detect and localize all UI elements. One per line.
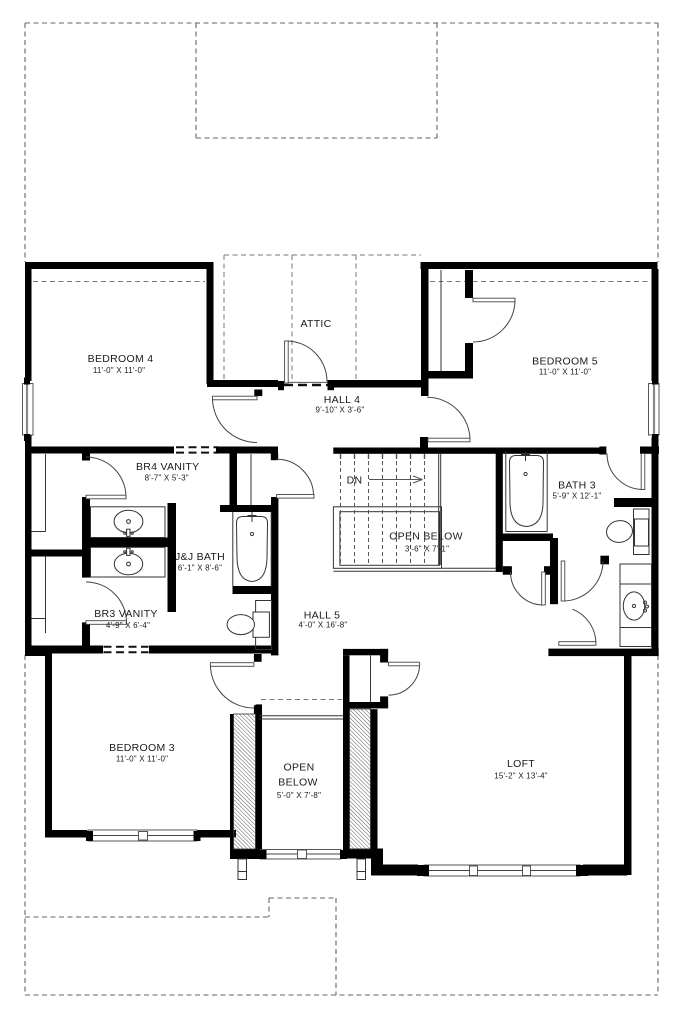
svg-text:8'-7" X 5'-3": 8'-7" X 5'-3"	[145, 474, 189, 483]
svg-text:15'-2" X 13'-4": 15'-2" X 13'-4"	[494, 772, 548, 781]
svg-text:4'-9" X 6'-4": 4'-9" X 6'-4"	[106, 621, 150, 630]
svg-text:5'-0" X 7'-8": 5'-0" X 7'-8"	[277, 791, 321, 800]
svg-text:11'-0" X 11'-0": 11'-0" X 11'-0"	[116, 755, 168, 764]
svg-text:OPEN BELOW: OPEN BELOW	[389, 531, 463, 543]
svg-text:ATTIC: ATTIC	[300, 318, 331, 330]
svg-text:6'-1" X 8'-6": 6'-1" X 8'-6"	[178, 564, 222, 573]
svg-text:BEDROOM 4: BEDROOM 4	[88, 353, 154, 365]
svg-text:11'-0" X 11'-0": 11'-0" X 11'-0"	[539, 368, 591, 377]
svg-text:9'-10" X 3'-6": 9'-10" X 3'-6"	[316, 406, 365, 415]
svg-text:BELOW: BELOW	[278, 777, 317, 789]
svg-text:BR3 VANITY: BR3 VANITY	[94, 608, 158, 620]
svg-text:LOFT: LOFT	[507, 758, 535, 770]
svg-text:11'-0" X 11'-0": 11'-0" X 11'-0"	[93, 366, 145, 375]
svg-text:3'-6" X 7'-1": 3'-6" X 7'-1"	[405, 545, 449, 554]
svg-text:OPEN: OPEN	[284, 762, 315, 774]
svg-text:5'-9" X 12'-1": 5'-9" X 12'-1"	[553, 492, 602, 501]
svg-text:BR4 VANITY: BR4 VANITY	[136, 461, 200, 473]
svg-text:HALL 4: HALL 4	[324, 394, 360, 406]
svg-text:DN: DN	[347, 475, 363, 487]
svg-text:J&J BATH: J&J BATH	[175, 551, 225, 563]
svg-text:BEDROOM 3: BEDROOM 3	[109, 742, 175, 754]
svg-text:BEDROOM 5: BEDROOM 5	[532, 356, 598, 368]
svg-text:BATH 3: BATH 3	[558, 480, 596, 492]
svg-text:4'-0" X 16'-8": 4'-0" X 16'-8"	[299, 621, 348, 630]
